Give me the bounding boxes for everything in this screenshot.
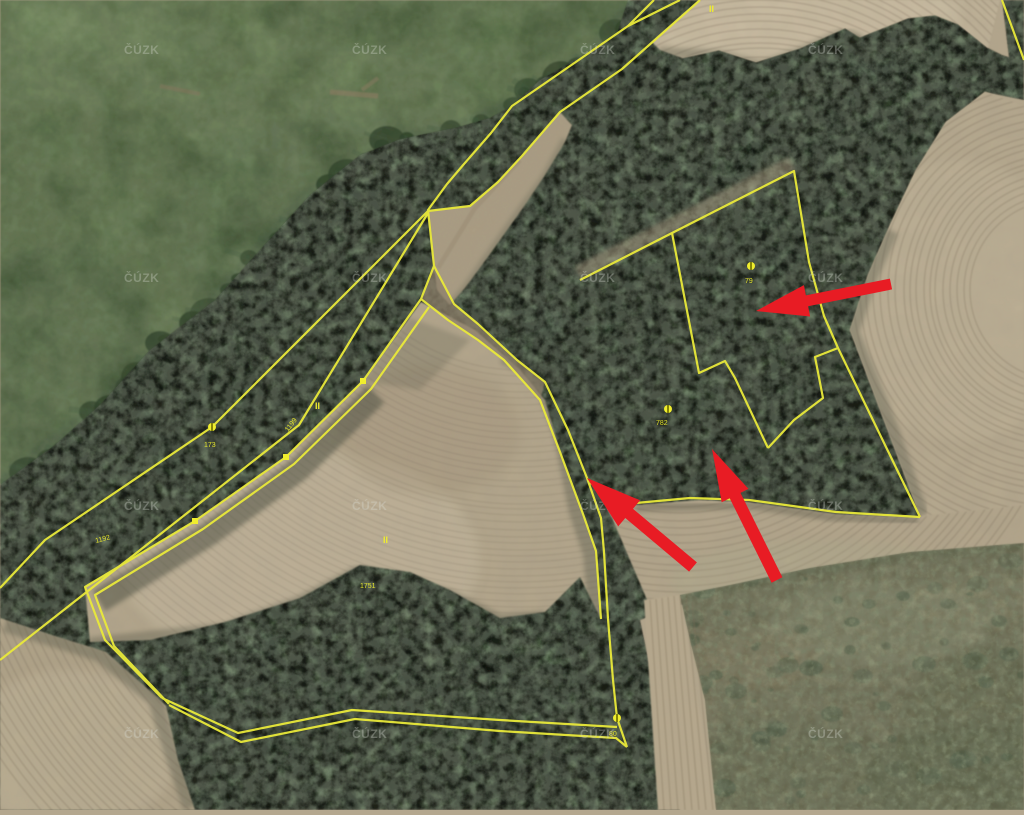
svg-text:ČÚZK: ČÚZK xyxy=(352,726,387,741)
svg-text:ČÚZK: ČÚZK xyxy=(808,498,843,513)
svg-text:ČÚZK: ČÚZK xyxy=(352,42,387,57)
svg-text:782: 782 xyxy=(656,420,668,427)
svg-text:173: 173 xyxy=(204,442,216,449)
svg-text:1751: 1751 xyxy=(360,583,376,590)
svg-text:ČÚZK: ČÚZK xyxy=(124,726,159,741)
svg-text:ČÚZK: ČÚZK xyxy=(124,42,159,57)
svg-text:79: 79 xyxy=(745,278,753,285)
svg-text:ČÚZK: ČÚZK xyxy=(580,270,615,285)
svg-text:ČÚZK: ČÚZK xyxy=(580,42,615,57)
svg-text:II: II xyxy=(383,535,388,545)
svg-text:ČÚZK: ČÚZK xyxy=(124,498,159,513)
svg-text:II: II xyxy=(315,401,320,411)
svg-text:II: II xyxy=(709,4,714,14)
svg-text:ČÚZK: ČÚZK xyxy=(808,270,843,285)
svg-text:ČÚZK: ČÚZK xyxy=(352,270,387,285)
svg-text:ČÚZK: ČÚZK xyxy=(580,726,615,741)
svg-text:ČÚZK: ČÚZK xyxy=(808,726,843,741)
svg-text:ČÚZK: ČÚZK xyxy=(352,498,387,513)
svg-text:ČÚZK: ČÚZK xyxy=(124,270,159,285)
svg-text:ČÚZK: ČÚZK xyxy=(808,42,843,57)
